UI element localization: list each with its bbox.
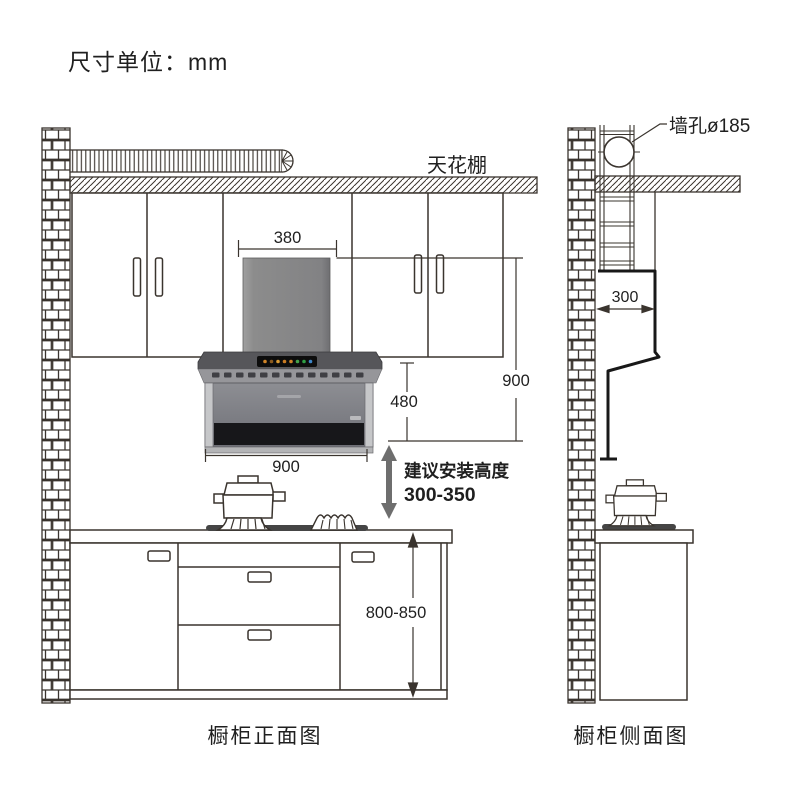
pot-icon bbox=[214, 476, 285, 530]
side-view: 墙孔ø185 300 橱柜侧面图 bbox=[568, 115, 750, 748]
dim-800-850-value: 800-850 bbox=[366, 604, 427, 622]
hood-bottom-strip bbox=[205, 447, 373, 453]
wall-hole-label: 墙孔ø185 bbox=[669, 115, 750, 137]
brick-wall-left bbox=[42, 128, 70, 703]
countertop-side bbox=[595, 530, 693, 543]
ceiling-slab bbox=[70, 177, 537, 193]
plinth bbox=[70, 690, 447, 699]
installation-diagram: 尺寸单位：mm 天花棚 bbox=[0, 0, 800, 800]
dim-300-value: 300 bbox=[612, 289, 639, 306]
pot-icon-side bbox=[606, 480, 666, 526]
wall-hole-icon bbox=[604, 137, 634, 167]
side-view-caption: 橱柜侧面图 bbox=[574, 725, 689, 748]
diagram-canvas: 尺寸单位：mm 天花棚 bbox=[0, 0, 800, 800]
ceiling-label: 天花棚 bbox=[427, 154, 487, 177]
dim-900w-value: 900 bbox=[272, 458, 300, 476]
dim-900v-value: 900 bbox=[502, 372, 530, 390]
ceiling-corrugated bbox=[70, 150, 293, 172]
ceiling-slab-side bbox=[595, 176, 740, 192]
install-height-arrow bbox=[381, 445, 397, 519]
dim-300 bbox=[598, 306, 653, 313]
unit-label: 尺寸单位：mm bbox=[68, 49, 228, 75]
dim-380-value: 380 bbox=[274, 229, 302, 247]
wall-hole-leader-line bbox=[632, 124, 667, 142]
hood-chimney bbox=[243, 258, 330, 358]
dim-480-value: 480 bbox=[390, 393, 418, 411]
front-view: 尺寸单位：mm 天花棚 bbox=[42, 49, 537, 748]
front-view-caption: 橱柜正面图 bbox=[208, 725, 323, 748]
install-height-range: 300-350 bbox=[404, 484, 476, 506]
brand-mark bbox=[277, 395, 301, 398]
brick-wall-side bbox=[568, 128, 595, 703]
install-height-title: 建议安装高度 bbox=[404, 461, 509, 481]
base-cabinet-side bbox=[600, 543, 687, 700]
burner-icon bbox=[311, 515, 357, 530]
countertop bbox=[70, 530, 452, 543]
hood-suction-opening bbox=[214, 423, 364, 445]
model-sticker bbox=[350, 416, 361, 420]
